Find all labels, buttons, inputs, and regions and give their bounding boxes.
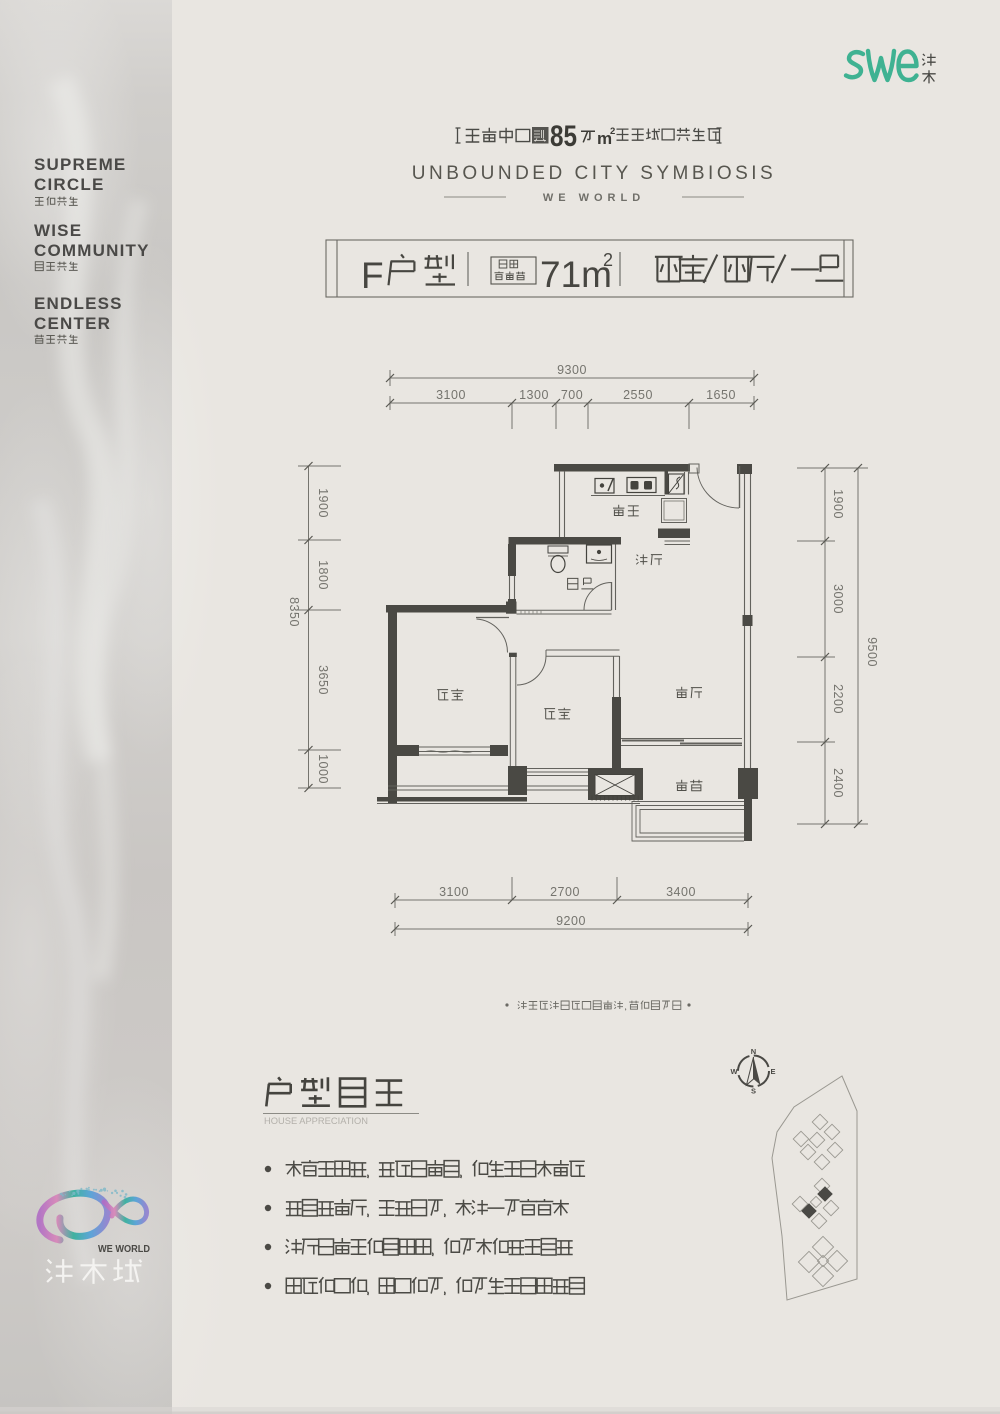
svg-text:WE WORLD: WE WORLD [98, 1244, 150, 1255]
svg-text:2200: 2200 [831, 684, 845, 714]
svg-text:2700: 2700 [550, 885, 580, 899]
svg-text:ENDLESS: ENDLESS [34, 294, 123, 313]
svg-text:1800: 1800 [316, 560, 330, 590]
svg-text:F: F [361, 255, 384, 296]
svg-text:E: E [770, 1067, 775, 1076]
svg-text:3100: 3100 [436, 388, 466, 402]
svg-text:2550: 2550 [623, 388, 653, 402]
svg-text:3650: 3650 [316, 665, 330, 695]
svg-text:71m: 71m [540, 254, 612, 295]
svg-text:9500: 9500 [865, 637, 879, 667]
svg-text:3100: 3100 [439, 885, 469, 899]
svg-text:700: 700 [561, 388, 583, 402]
svg-text:1900: 1900 [831, 489, 845, 519]
svg-text:2400: 2400 [831, 768, 845, 798]
svg-text:COMMUNITY: COMMUNITY [34, 241, 150, 260]
svg-text:1300: 1300 [519, 388, 549, 402]
svg-text:UNBOUNDED CITY SYMBIOSIS: UNBOUNDED CITY SYMBIOSIS [412, 163, 776, 184]
svg-text:1000: 1000 [316, 754, 330, 784]
svg-text:N: N [751, 1047, 756, 1056]
svg-text:CENTER: CENTER [34, 314, 111, 333]
svg-text:1900: 1900 [316, 488, 330, 518]
svg-text:1650: 1650 [706, 388, 736, 402]
svg-text:2: 2 [603, 250, 613, 270]
svg-text:SUPREME: SUPREME [34, 155, 126, 174]
svg-text:8350: 8350 [287, 597, 301, 627]
svg-text:2: 2 [610, 126, 615, 137]
svg-text:HOUSE APPRECIATION: HOUSE APPRECIATION [264, 1116, 368, 1126]
svg-text:CIRCLE: CIRCLE [34, 175, 104, 194]
svg-text:9200: 9200 [556, 914, 586, 928]
svg-text:WISE: WISE [34, 221, 82, 240]
svg-text:WE WORLD: WE WORLD [543, 192, 645, 204]
svg-text:3000: 3000 [831, 584, 845, 614]
svg-text:85: 85 [550, 120, 577, 153]
svg-text:9300: 9300 [557, 363, 587, 377]
svg-text:3400: 3400 [666, 885, 696, 899]
svg-text:W: W [730, 1067, 738, 1076]
svg-text:S: S [751, 1087, 756, 1096]
